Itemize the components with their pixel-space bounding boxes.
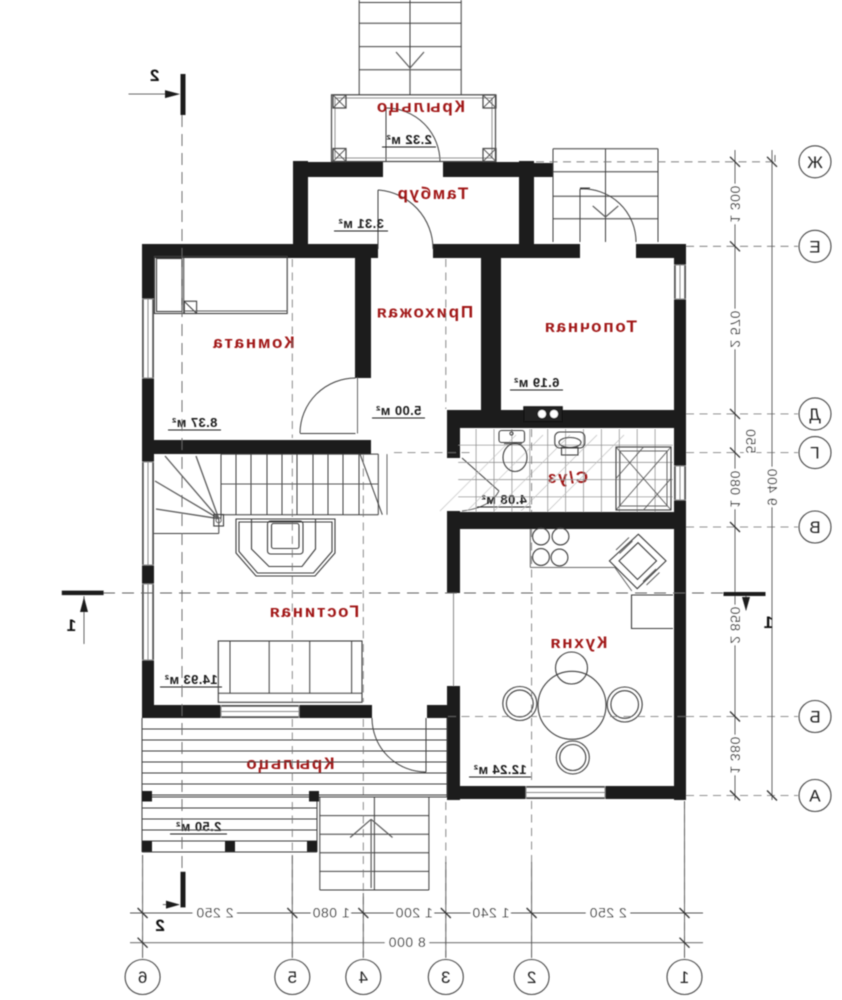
svg-text:Г: Г — [810, 444, 819, 463]
svg-text:1 080: 1 080 — [728, 470, 744, 508]
svg-text:2 250: 2 250 — [196, 905, 234, 921]
svg-text:2 850: 2 850 — [728, 606, 744, 644]
svg-text:Ж: Ж — [807, 153, 823, 172]
svg-text:1 080: 1 080 — [312, 905, 350, 921]
svg-text:5: 5 — [288, 968, 297, 987]
svg-text:Д: Д — [809, 405, 821, 424]
svg-text:1: 1 — [67, 616, 76, 635]
svg-text:2.32 м²: 2.32 м² — [386, 132, 432, 147]
svg-text:Кухня: Кухня — [549, 633, 608, 652]
svg-text:6: 6 — [138, 968, 147, 987]
svg-text:2: 2 — [150, 66, 159, 85]
svg-text:4: 4 — [359, 968, 368, 987]
svg-text:12.24 м²: 12.24 м² — [473, 762, 527, 777]
svg-text:8 000: 8 000 — [388, 934, 426, 950]
svg-text:2 570: 2 570 — [728, 310, 744, 348]
svg-text:1 240: 1 240 — [472, 905, 510, 921]
svg-text:Топочная: Топочная — [543, 317, 637, 336]
svg-text:8.37 м²: 8.37 м² — [171, 415, 217, 430]
svg-text:5.00 м²: 5.00 м² — [375, 403, 421, 418]
svg-text:3: 3 — [441, 968, 450, 987]
svg-text:А: А — [809, 787, 821, 806]
svg-text:1: 1 — [764, 613, 773, 632]
svg-text:Е: Е — [809, 237, 820, 256]
svg-text:Крыльцо: Крыльцо — [375, 97, 465, 116]
svg-text:6.19 м²: 6.19 м² — [513, 375, 559, 390]
svg-text:1: 1 — [680, 968, 689, 987]
svg-text:2 250: 2 250 — [589, 905, 627, 921]
svg-text:1 380: 1 380 — [728, 736, 744, 774]
svg-text:9 400: 9 400 — [765, 468, 781, 506]
svg-text:Прихожая: Прихожая — [375, 303, 473, 322]
svg-text:14.93 м²: 14.93 м² — [164, 672, 218, 687]
svg-text:4.08 м²: 4.08 м² — [481, 492, 527, 507]
svg-text:1 300: 1 300 — [728, 185, 744, 223]
svg-text:1 200: 1 200 — [395, 905, 433, 921]
svg-text:В: В — [809, 518, 820, 537]
svg-text:3.31 м²: 3.31 м² — [338, 216, 384, 231]
svg-text:Б: Б — [809, 708, 820, 727]
svg-text:Тамбур: Тамбур — [396, 184, 468, 203]
svg-text:Гостиная: Гостиная — [268, 602, 359, 621]
svg-text:2: 2 — [155, 916, 164, 935]
svg-text:550: 550 — [743, 429, 759, 454]
svg-text:Крыльцо: Крыльцо — [245, 754, 335, 773]
svg-text:2: 2 — [527, 968, 536, 987]
svg-text:Комната: Комната — [211, 333, 294, 352]
